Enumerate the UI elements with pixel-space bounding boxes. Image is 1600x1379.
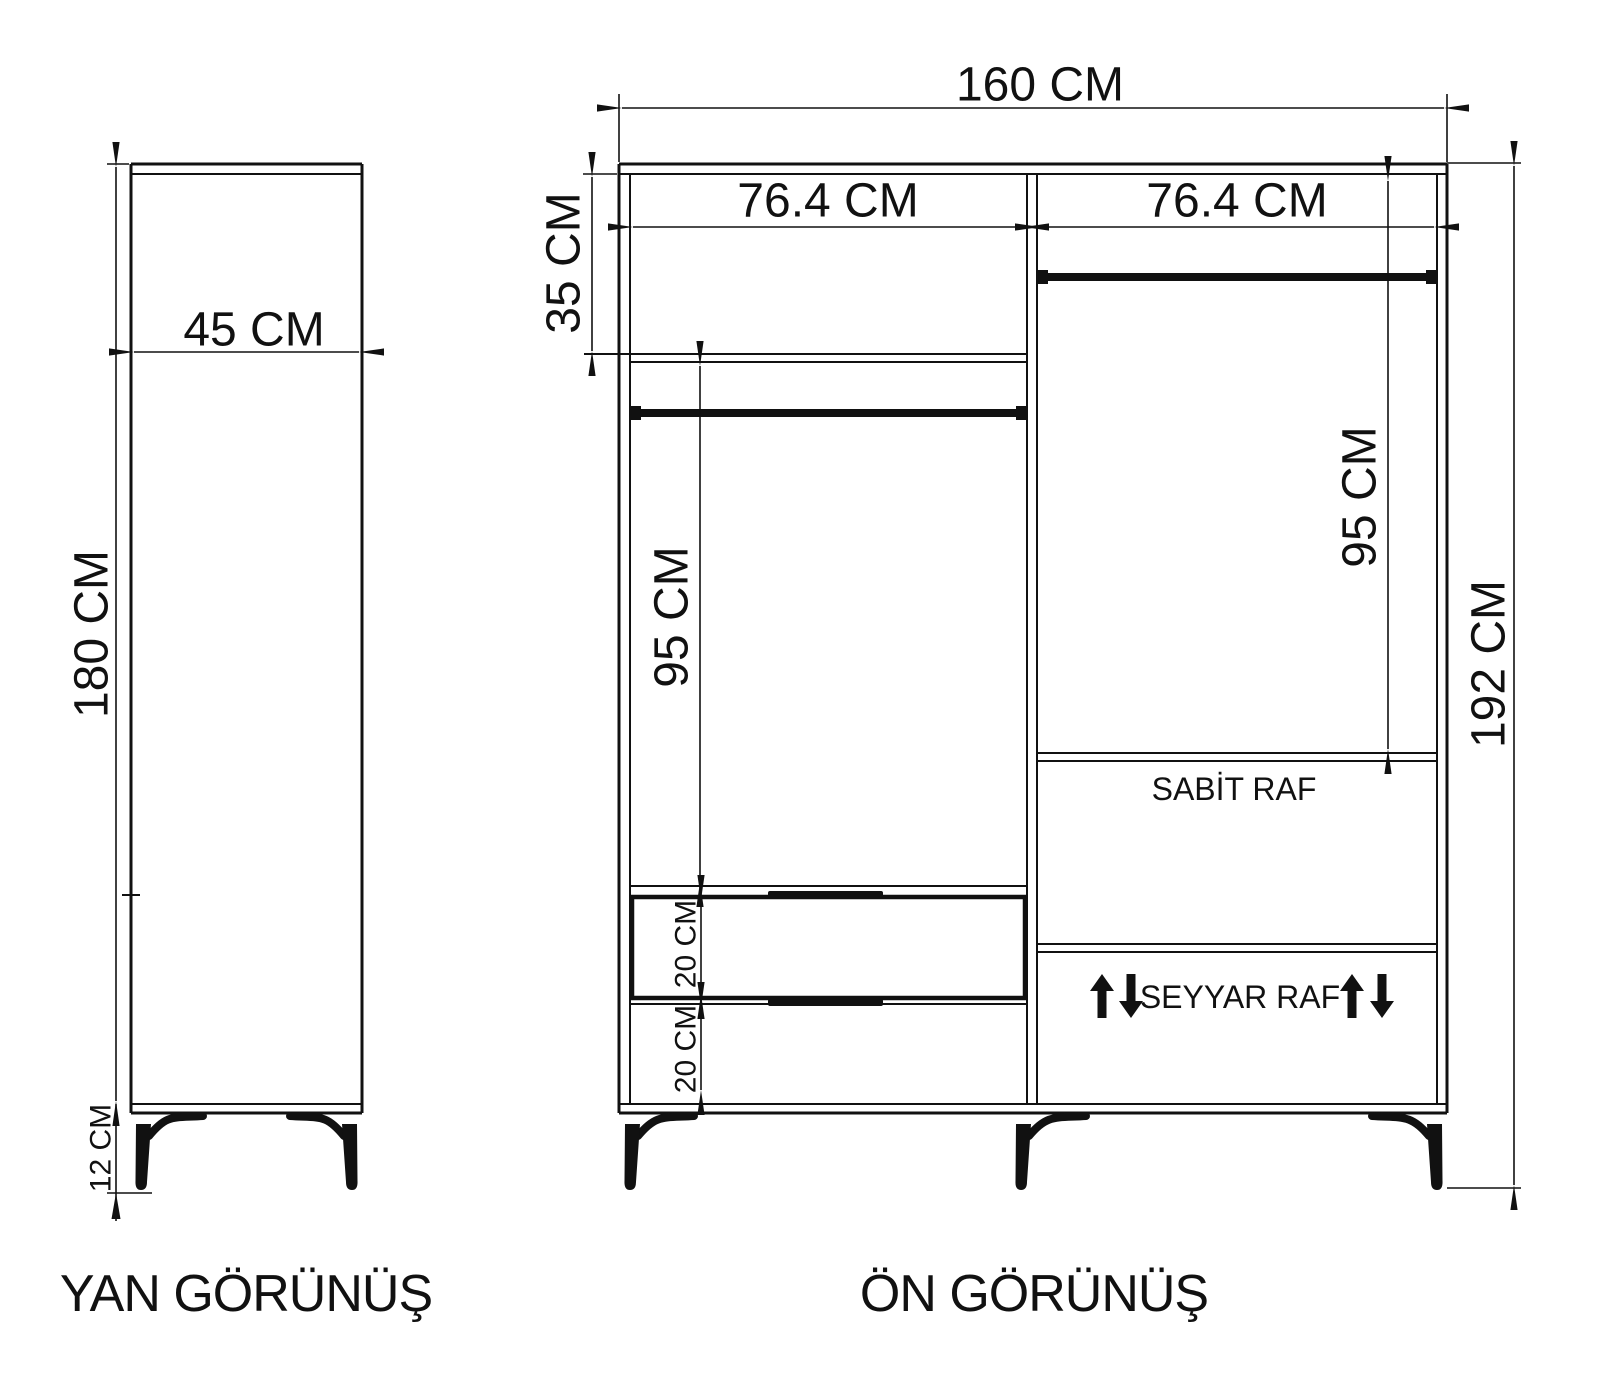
drawer-1-handle-icon xyxy=(768,891,883,898)
front-right-leg xyxy=(1372,1116,1443,1190)
top-shelf-label: 35 CM xyxy=(538,192,591,333)
fixed-shelf-label: SABİT RAF xyxy=(1152,771,1317,807)
up-arrow-icon xyxy=(1340,974,1364,1018)
left-hanging-rod-icon xyxy=(630,406,1027,420)
left-hanging-label: 95 CM xyxy=(646,546,699,687)
drawer-2-handle-icon xyxy=(768,999,883,1006)
right-compartment: SABİT RAF SEYYAR RAF xyxy=(1037,270,1437,1018)
right-hanging-rod-icon xyxy=(1037,270,1437,284)
side-leg-height-label: 12 CM xyxy=(85,1104,118,1192)
right-hanging-label: 95 CM xyxy=(1334,426,1387,567)
front-view-title: ÖN GÖRÜNÜŞ xyxy=(860,1265,1208,1323)
left-section-label: 76.4 CM xyxy=(737,175,918,228)
drawer-2-label: 20 CM xyxy=(670,1005,703,1093)
front-middle-leg xyxy=(1015,1116,1086,1190)
right-section-label: 76.4 CM xyxy=(1146,175,1327,228)
center-divider xyxy=(1027,174,1037,1104)
top-shelf-dimension: 35 CM xyxy=(538,174,618,351)
left-hanging-dimension: 95 CM xyxy=(646,366,701,882)
side-depth-label: 45 CM xyxy=(183,304,324,357)
front-left-leg xyxy=(624,1116,694,1190)
side-height-dimension: 180 CM xyxy=(66,164,130,1101)
fixed-shelf xyxy=(1037,753,1437,761)
front-view: SABİT RAF SEYYAR RAF xyxy=(538,59,1522,1324)
front-height-dimension: 192 CM xyxy=(1447,163,1521,1188)
side-right-leg xyxy=(290,1116,358,1190)
front-width-label: 160 CM xyxy=(956,59,1124,112)
up-arrow-icon xyxy=(1090,974,1114,1018)
drawer-1-label: 20 CM xyxy=(670,900,703,988)
drawer-1-dimension: 20 CM xyxy=(670,900,703,994)
movable-shelf-label: SEYYAR RAF xyxy=(1140,979,1340,1015)
side-depth-dimension: 45 CM xyxy=(134,304,359,357)
wardrobe-technical-drawing: 45 CM 180 CM 12 CM YAN GÖRÜNÜŞ xyxy=(0,0,1600,1379)
front-cabinet-outline xyxy=(619,164,1447,1113)
side-view: 45 CM 180 CM 12 CM YAN GÖRÜNÜŞ xyxy=(60,164,432,1323)
left-section-dimension: 76.4 CM xyxy=(633,175,1024,228)
drawer-2-dimension: 20 CM xyxy=(670,1005,703,1093)
side-left-leg xyxy=(135,1116,203,1190)
right-hanging-dimension: 95 CM xyxy=(1334,181,1389,749)
down-arrow-icon xyxy=(1370,974,1394,1018)
front-height-label: 192 CM xyxy=(1463,580,1516,748)
drawing-canvas: 45 CM 180 CM 12 CM YAN GÖRÜNÜŞ xyxy=(0,0,1600,1379)
movable-shelf-row: SEYYAR RAF xyxy=(1090,974,1394,1018)
side-view-title: YAN GÖRÜNÜŞ xyxy=(60,1265,432,1323)
front-width-dimension: 160 CM xyxy=(619,59,1447,163)
right-section-dimension: 76.4 CM xyxy=(1040,175,1434,228)
movable-shelf xyxy=(1037,944,1437,952)
side-height-label: 180 CM xyxy=(66,550,119,718)
